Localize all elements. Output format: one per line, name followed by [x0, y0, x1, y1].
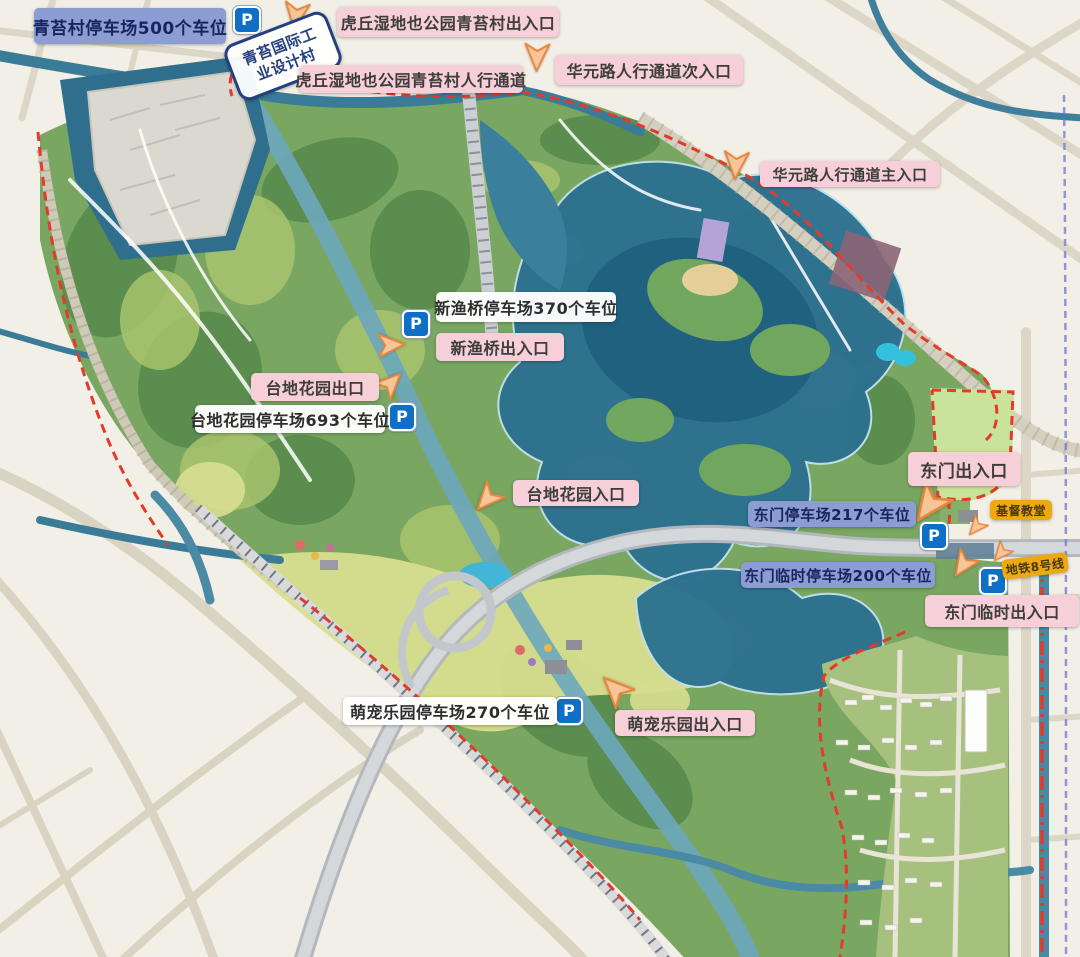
label-qingtai-gate: 虎丘湿地也公园青苔村出入口	[337, 7, 559, 37]
parking-icon: P	[555, 697, 583, 725]
park-map: P P P P P P 青苔村停车场500个车位 青苔国际工业设计村 虎丘湿地也…	[0, 0, 1080, 957]
label-east-gate: 东门出入口	[908, 452, 1020, 486]
label-terrace-garden-parking: 台地花园停车场693个车位	[195, 405, 385, 433]
label-church: 基督教堂	[990, 500, 1052, 520]
label-east-temp-gate: 东门临时出入口	[925, 595, 1079, 627]
label-huayuan-secondary-entrance: 华元路人行通道次入口	[555, 55, 743, 85]
label-xinyuqiao-parking: 新渔桥停车场370个车位	[436, 292, 616, 322]
entrance-arrow-icon	[376, 332, 406, 358]
label-xinyuqiao-gate: 新渔桥出入口	[436, 333, 564, 361]
label-pet-park-parking: 萌宠乐园停车场270个车位	[343, 697, 557, 725]
parking-icon: P	[388, 403, 416, 431]
label-east-temp-parking: 东门临时停车场200个车位	[741, 562, 935, 588]
entrance-arrow-icon	[722, 149, 750, 181]
label-qingtai-walkway: 虎丘湿地也公园青苔村人行通道	[299, 65, 523, 93]
label-huayuan-main-entrance: 华元路人行通道主入口	[760, 161, 940, 187]
parking-icon: P	[233, 6, 261, 34]
label-east-gate-parking: 东门停车场217个车位	[748, 501, 916, 527]
label-pet-park-gate: 萌宠乐园出入口	[615, 710, 755, 736]
label-qingtai-parking: 青苔村停车场500个车位	[34, 8, 226, 44]
parking-icon: P	[402, 310, 430, 338]
entrance-arrow-icon	[523, 42, 550, 73]
label-terrace-garden-entrance: 台地花园入口	[513, 480, 639, 506]
label-terrace-garden-exit: 台地花园出口	[251, 373, 379, 401]
